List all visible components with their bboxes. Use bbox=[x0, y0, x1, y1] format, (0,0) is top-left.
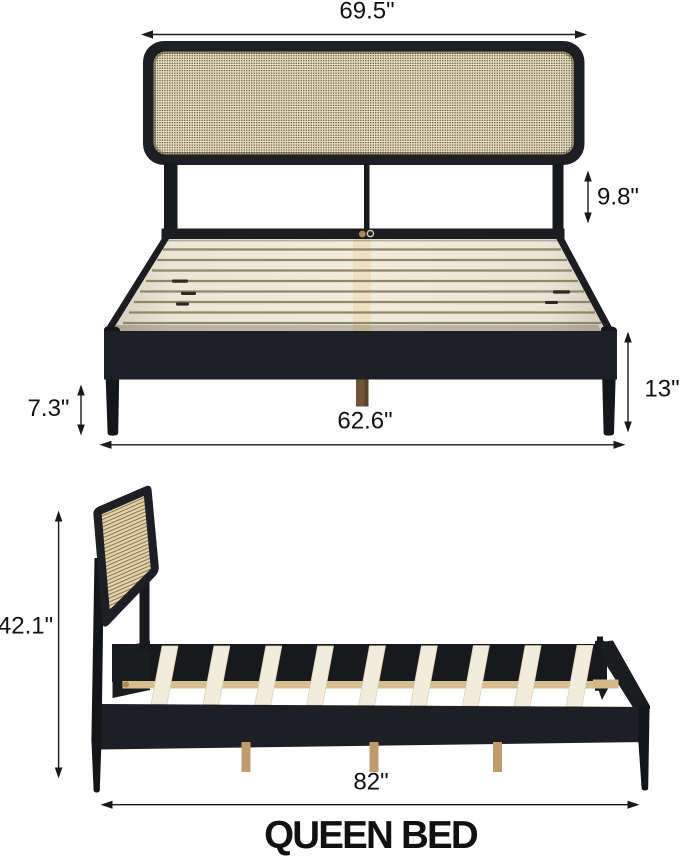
svg-text:9.8": 9.8" bbox=[597, 184, 639, 211]
svg-text:13": 13" bbox=[644, 376, 679, 403]
svg-text:QUEEN BED: QUEEN BED bbox=[264, 814, 478, 856]
svg-text:7.3": 7.3" bbox=[28, 395, 70, 422]
svg-text:69.5": 69.5" bbox=[339, 0, 394, 25]
svg-text:42.1": 42.1" bbox=[0, 613, 53, 640]
svg-text:82": 82" bbox=[353, 769, 388, 796]
svg-text:62.6": 62.6" bbox=[337, 408, 392, 435]
